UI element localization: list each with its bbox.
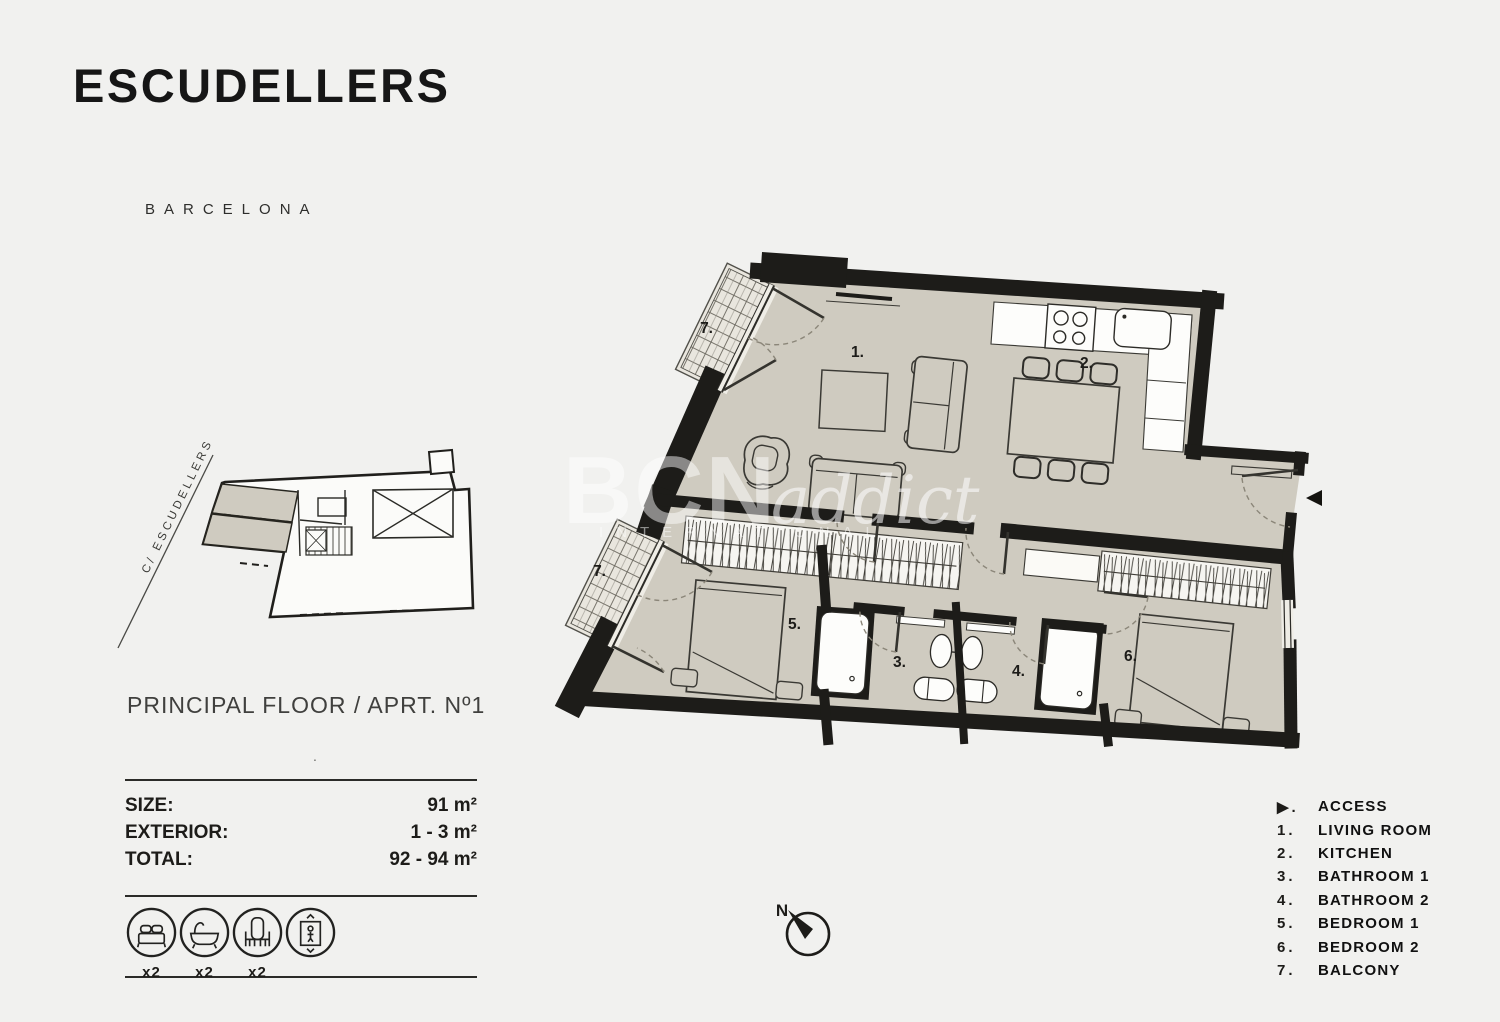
page-title: ESCUDELLERS — [73, 58, 450, 113]
stats-row-exterior: EXTERIOR: 1 - 3 m² — [125, 819, 477, 846]
legend-label: BALCONY — [1318, 962, 1401, 979]
legend-marker: 5. — [1277, 915, 1318, 932]
kitchen-sink — [1113, 308, 1172, 350]
exterior-value: 1 - 3 m² — [410, 819, 477, 846]
label-living-room: 1. — [851, 344, 864, 361]
bath-count: x2 — [178, 964, 231, 981]
stats-row-size: SIZE: 91 m² — [125, 792, 477, 819]
legend-item-bathroom2: 4. BATHROOM 2 — [1277, 889, 1432, 912]
label-bedroom2: 6. — [1124, 648, 1137, 665]
size-label: SIZE: — [125, 792, 174, 819]
nightstand — [671, 668, 698, 687]
room-legend: ▶. ACCESS 1. LIVING ROOM 2. KITCHEN 3. B… — [1277, 795, 1432, 982]
floor-apartment-title: PRINCIPAL FLOOR / APRT. Nº1 — [127, 692, 485, 719]
label-bathroom2: 4. — [1012, 663, 1025, 680]
exterior-label: EXTERIOR: — [125, 819, 228, 846]
nightstand — [776, 681, 803, 700]
amenities-strip: x2 x2 x2 — [125, 895, 477, 978]
chair-count: x2 — [231, 964, 284, 981]
legend-marker: 2. — [1277, 845, 1318, 862]
building-tower — [429, 450, 454, 474]
legend-label: BEDROOM 1 — [1318, 915, 1420, 932]
amenity-beds: x2 — [125, 906, 178, 981]
legend-label: KITCHEN — [1318, 845, 1393, 862]
bedroom2-window — [1284, 600, 1291, 648]
amenity-chairs: x2 — [231, 906, 284, 981]
wall-corner-chunk — [760, 252, 848, 288]
access-arrow-icon — [1306, 490, 1322, 506]
building-stairs — [306, 527, 352, 555]
apartment-plan: 1. 2. 3. 4. 5. 6. 7. 7. — [566, 252, 1322, 742]
legend-label: BEDROOM 2 — [1318, 939, 1420, 956]
label-bedroom1: 5. — [788, 616, 801, 633]
legend-marker: 7. — [1277, 962, 1318, 979]
bed-bedroom2 — [1129, 614, 1234, 731]
label-bathroom1: 3. — [893, 654, 906, 671]
legend-label: BATHROOM 1 — [1318, 868, 1430, 885]
legend-label: LIVING ROOM — [1318, 822, 1432, 839]
legend-label: ACCESS — [1318, 798, 1388, 815]
street-line — [118, 455, 213, 648]
shower-bath1 — [811, 606, 875, 700]
legend-marker: ▶. — [1277, 798, 1318, 816]
legend-item-balcony: 7. BALCONY — [1277, 959, 1432, 982]
legend-marker: 6. — [1277, 939, 1318, 956]
elevator-icon — [284, 906, 337, 959]
legend-item-access: ▶. ACCESS — [1277, 795, 1432, 818]
toilet-bath1 — [913, 676, 955, 701]
total-value: 92 - 94 m² — [389, 846, 477, 873]
size-value: 91 m² — [427, 792, 477, 819]
compass-north-label: N — [776, 901, 788, 920]
chair-icon — [231, 906, 284, 959]
stove-icon — [1045, 304, 1096, 351]
label-balcony-bottom: 7. — [593, 563, 606, 580]
amenity-elevator — [284, 906, 337, 964]
total-label: TOTAL: — [125, 846, 193, 873]
legend-item-bedroom2: 6. BEDROOM 2 — [1277, 935, 1432, 958]
legend-marker: 4. — [1277, 892, 1318, 909]
bathtub-icon — [178, 906, 231, 959]
bed-bedroom1 — [686, 580, 785, 699]
sofa — [903, 356, 967, 453]
compass: N — [776, 901, 829, 955]
label-kitchen: 2. — [1080, 355, 1093, 372]
street-label: C/ ESCUDELLERS — [140, 437, 216, 575]
location-minimap: C/ ESCUDELLERS — [118, 437, 473, 648]
area-stats-table: SIZE: 91 m² EXTERIOR: 1 - 3 m² TOTAL: 92… — [125, 779, 477, 873]
bed-icon — [125, 906, 178, 959]
stray-mark: . — [313, 748, 317, 764]
label-balcony-top: 7. — [700, 320, 713, 337]
brochure-page: C/ ESCUDELLERS — [0, 0, 1500, 1022]
legend-label: BATHROOM 2 — [1318, 892, 1430, 909]
legend-marker: 1. — [1277, 822, 1318, 839]
legend-item-living-room: 1. LIVING ROOM — [1277, 818, 1432, 841]
legend-marker: 3. — [1277, 868, 1318, 885]
living-rug — [819, 370, 888, 431]
legend-item-kitchen: 2. KITCHEN — [1277, 842, 1432, 865]
city-subtitle: BARCELONA — [145, 201, 319, 218]
legend-item-bathroom1: 3. BATHROOM 1 — [1277, 865, 1432, 888]
armchair — [744, 436, 789, 489]
bed-count: x2 — [125, 964, 178, 981]
stats-row-total: TOTAL: 92 - 94 m² — [125, 846, 477, 873]
legend-item-bedroom1: 5. BEDROOM 1 — [1277, 912, 1432, 935]
amenity-baths: x2 — [178, 906, 231, 981]
